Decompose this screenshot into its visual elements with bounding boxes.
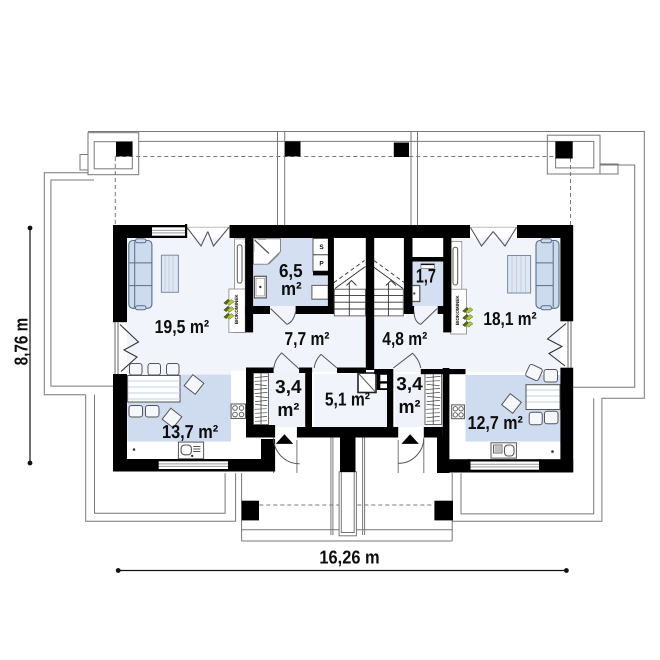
svg-text:12,7 m²: 12,7 m² xyxy=(468,412,523,433)
svg-text:19,5 m²: 19,5 m² xyxy=(155,316,210,337)
svg-text:7,7 m²: 7,7 m² xyxy=(285,328,330,349)
svg-text:BIOKOMINEK: BIOKOMINEK xyxy=(455,295,460,326)
svg-text:18,1 m²: 18,1 m² xyxy=(483,308,536,329)
svg-text:13,7 m²: 13,7 m² xyxy=(162,421,218,442)
svg-text:3,4: 3,4 xyxy=(396,373,423,394)
svg-text:5,1 m²: 5,1 m² xyxy=(325,389,370,410)
svg-text:8,76 m: 8,76 m xyxy=(11,318,32,366)
svg-text:BIOKOMINEK: BIOKOMINEK xyxy=(234,294,239,325)
svg-text:3,4: 3,4 xyxy=(275,376,302,397)
svg-text:1,7: 1,7 xyxy=(416,266,436,288)
svg-text:S: S xyxy=(319,244,324,251)
svg-text:16,26 m: 16,26 m xyxy=(319,547,379,568)
svg-text:m²: m² xyxy=(399,396,421,417)
svg-text:P: P xyxy=(319,261,324,268)
svg-text:m²: m² xyxy=(277,399,299,420)
svg-text:m²: m² xyxy=(281,278,302,299)
svg-text:4,8 m²: 4,8 m² xyxy=(382,328,427,349)
